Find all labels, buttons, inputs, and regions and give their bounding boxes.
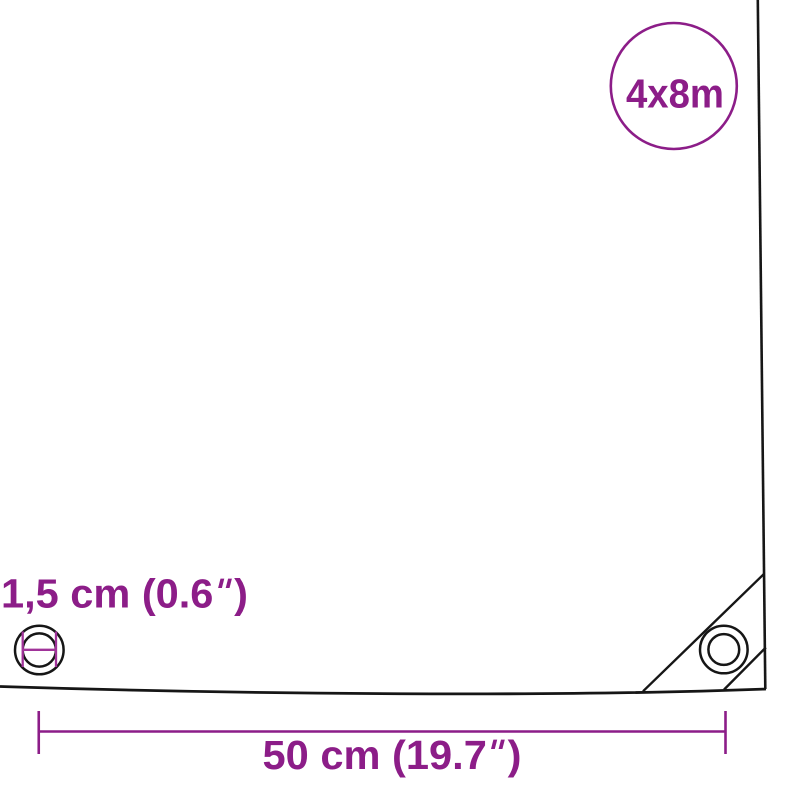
svg-text:4x8m: 4x8m <box>626 71 724 117</box>
svg-text:1,5 cm (0.6”): 1,5 cm (0.6”) <box>1 571 248 617</box>
svg-text:50 cm (19.7”): 50 cm (19.7”) <box>263 732 522 778</box>
